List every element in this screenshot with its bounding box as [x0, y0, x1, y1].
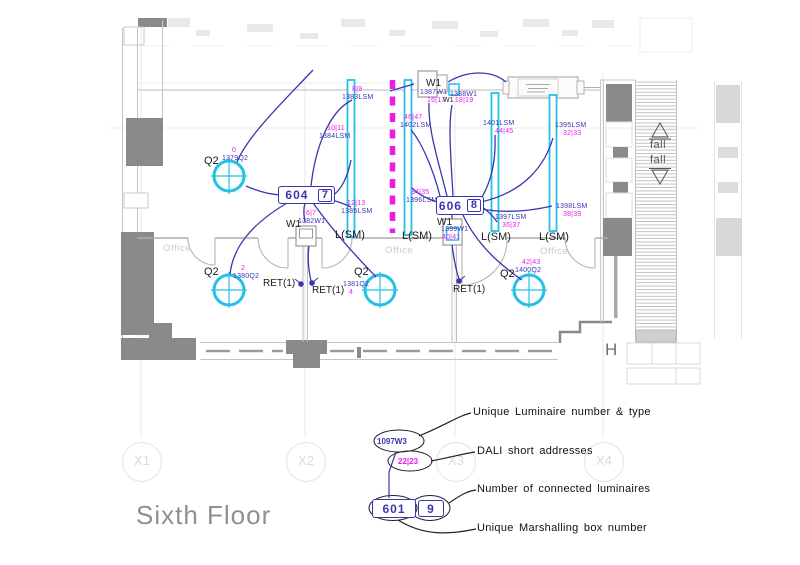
- page-title: Sixth Floor: [136, 500, 271, 531]
- lsm-tag-1: L(SM): [335, 230, 365, 240]
- legend-callout-marshalling: Unique Marshalling box number: [477, 522, 647, 534]
- ret-tag-3: RET(1): [453, 285, 485, 295]
- lsm-tag-2: L(SM): [402, 231, 432, 241]
- room-label-office-3: Office: [540, 246, 568, 257]
- q2-tag-4: Q2: [500, 269, 515, 279]
- marshalling-box-604-id: 604: [279, 188, 315, 202]
- lsm-tag-4: L(SM): [539, 232, 569, 242]
- legend-marshalling-box: 601: [372, 499, 416, 518]
- marshalling-box-606: 606 8: [436, 196, 484, 215]
- ret-tag-1: RET(1): [263, 279, 295, 289]
- legend-dali-ref: 22|23: [398, 457, 418, 466]
- luminaire-label-1397: 1397LSM36|37: [495, 214, 526, 229]
- luminaire-label-1395: 1395LSM32|33: [555, 122, 586, 137]
- luminaire-label-1379: 01379Q2: [222, 147, 248, 162]
- w1-tag-2: W1: [426, 79, 441, 89]
- luminaire-label-1382: 6|71382W1: [298, 210, 325, 225]
- luminaire-label-1388-addr: W118|19: [443, 97, 473, 105]
- floor-plan-canvas: Office Office Office 01379Q2 8|91383LSM …: [0, 0, 800, 565]
- luminaire-label-1380: 21380Q2: [233, 265, 259, 280]
- marshalling-box-606-count: 8: [467, 199, 481, 212]
- floor-above-outline: [140, 18, 692, 52]
- marshalling-box-604-count: 7: [318, 189, 332, 202]
- luminaire-label-1385: 12|131385LSM: [341, 200, 372, 215]
- q2-tag-2: Q2: [204, 267, 219, 277]
- luminaire-label-1401: 1401LSM44|45: [483, 120, 514, 135]
- legend-callout-dali: DALI short addresses: [477, 445, 593, 457]
- fall-label-2: fall: [650, 154, 666, 166]
- legend-box-count: 9: [418, 500, 444, 517]
- legend-callout-luminaire: Unique Luminaire number & type: [473, 406, 651, 418]
- roof-fall-hatch-zone: [627, 80, 700, 384]
- w1-tag-1: W1: [286, 220, 301, 230]
- marshalling-box-606-id: 606: [437, 199, 464, 213]
- legend-callout-connected: Number of connected luminaires: [477, 483, 650, 495]
- plan-drawing: [0, 0, 800, 565]
- luminaire-label-1381: 1381Q24: [343, 281, 369, 296]
- room-label-office-1: Office: [163, 243, 191, 254]
- luminaire-label-1384: 10|111384LSM: [319, 125, 350, 140]
- q2-symbol-1400: [511, 272, 547, 308]
- lsm-tag-3: L(SM): [481, 232, 511, 242]
- fall-label-1: fall: [650, 139, 666, 151]
- room-label-office-2: Office: [385, 245, 413, 256]
- luminaire-label-1398: 1398LSM38|39: [556, 203, 587, 218]
- luminaire-label-1400: 42|431400Q2: [515, 259, 541, 274]
- luminaire-label-1402: 46|471402LSM: [400, 114, 431, 129]
- q2-tag-3: Q2: [354, 267, 369, 277]
- luminaire-label-1396: 34|351396LSM: [406, 189, 437, 204]
- stair-label: H: [605, 340, 617, 360]
- q2-tag-1: Q2: [204, 156, 219, 166]
- luminaire-label-1383: 8|91383LSM: [342, 86, 373, 101]
- ret-tag-2: RET(1): [312, 286, 344, 296]
- luminaire-strip-1402: [405, 80, 412, 235]
- legend-luminaire-ref: 1097W3: [377, 437, 407, 446]
- legend-box-id: 601: [373, 502, 415, 516]
- marshalling-box-604: 604 7: [278, 186, 335, 204]
- w1-tag-3: W1: [437, 218, 452, 228]
- luminaire-label-1399: 1399W140|41: [441, 226, 468, 241]
